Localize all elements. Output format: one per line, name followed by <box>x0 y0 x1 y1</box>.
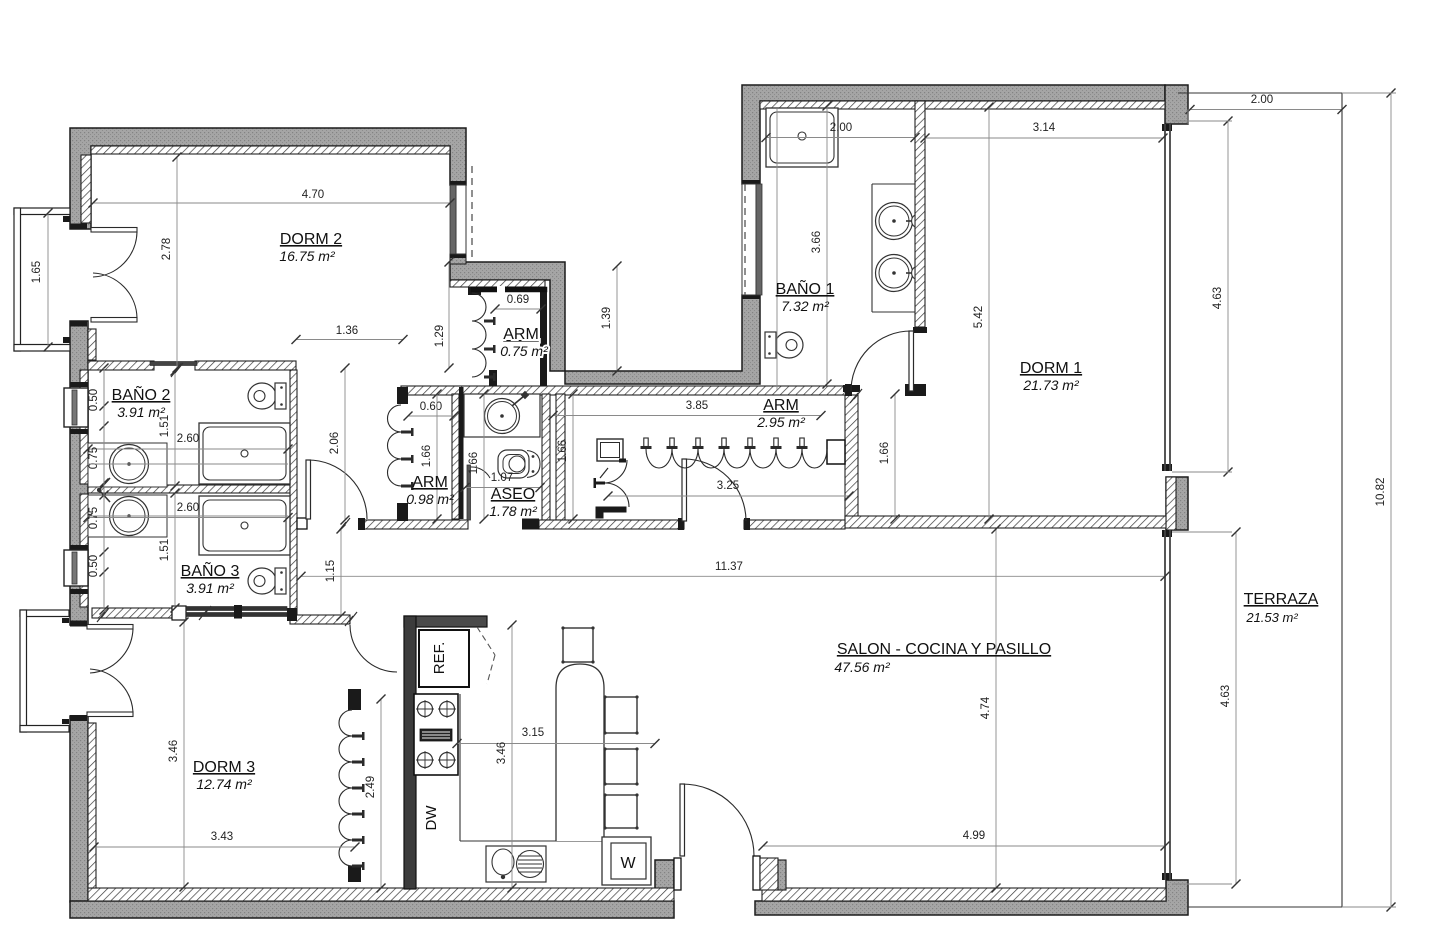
svg-text:1.07: 1.07 <box>491 472 513 484</box>
svg-text:DORM 2: DORM 2 <box>280 231 342 248</box>
svg-text:11.37: 11.37 <box>715 561 743 573</box>
svg-text:0.50: 0.50 <box>88 389 100 411</box>
svg-text:DW: DW <box>423 805 440 831</box>
svg-text:ARM: ARM <box>412 474 448 491</box>
svg-text:4.74: 4.74 <box>980 696 992 719</box>
svg-text:BAÑO 2: BAÑO 2 <box>112 384 171 404</box>
svg-text:DORM 3: DORM 3 <box>193 759 255 776</box>
svg-text:3.14: 3.14 <box>1033 122 1056 134</box>
svg-text:DORM 1: DORM 1 <box>1020 360 1082 377</box>
svg-text:BAÑO 3: BAÑO 3 <box>181 560 240 580</box>
svg-text:1.65: 1.65 <box>31 261 43 283</box>
svg-text:REF.: REF. <box>431 642 448 675</box>
svg-text:1.51: 1.51 <box>159 539 171 561</box>
svg-text:4.63: 4.63 <box>1212 287 1224 309</box>
svg-text:1.66: 1.66 <box>468 452 480 474</box>
svg-text:ARM: ARM <box>503 326 539 343</box>
svg-text:ASEO: ASEO <box>491 486 535 503</box>
svg-text:21.73 m²: 21.73 m² <box>1022 377 1080 393</box>
svg-text:47.56 m²: 47.56 m² <box>834 659 891 675</box>
svg-text:7.32 m²: 7.32 m² <box>781 298 830 314</box>
svg-text:0.75: 0.75 <box>88 447 100 469</box>
svg-text:1.66: 1.66 <box>557 440 569 462</box>
svg-text:21.53 m²: 21.53 m² <box>1245 610 1298 625</box>
svg-text:0.50: 0.50 <box>88 555 100 577</box>
svg-text:2.49: 2.49 <box>365 776 377 798</box>
svg-text:0.69: 0.69 <box>507 294 529 306</box>
svg-text:W: W <box>620 855 636 872</box>
svg-text:1.39: 1.39 <box>601 307 613 329</box>
svg-text:3.46: 3.46 <box>168 740 180 762</box>
svg-text:2.95 m²: 2.95 m² <box>756 414 806 430</box>
svg-text:1.15: 1.15 <box>325 560 337 582</box>
svg-text:3.85: 3.85 <box>686 400 708 412</box>
svg-text:3.25: 3.25 <box>717 480 739 492</box>
svg-text:TERRAZA: TERRAZA <box>1244 591 1319 608</box>
svg-text:1.29: 1.29 <box>434 325 446 347</box>
svg-text:3.46: 3.46 <box>496 742 508 764</box>
svg-text:2.00: 2.00 <box>830 122 852 134</box>
svg-text:10.82: 10.82 <box>1375 478 1387 507</box>
svg-text:4.99: 4.99 <box>963 830 985 842</box>
svg-text:3.66: 3.66 <box>811 231 823 253</box>
svg-text:16.75 m²: 16.75 m² <box>279 248 336 264</box>
svg-text:12.74 m²: 12.74 m² <box>196 776 253 792</box>
svg-text:3.15: 3.15 <box>522 727 544 739</box>
svg-text:0.75: 0.75 <box>88 507 100 529</box>
svg-text:5.42: 5.42 <box>973 306 985 328</box>
svg-text:BAÑO 1: BAÑO 1 <box>776 278 835 298</box>
svg-text:1.36: 1.36 <box>336 325 358 337</box>
svg-text:3.43: 3.43 <box>211 831 233 843</box>
svg-text:3.91 m²: 3.91 m² <box>117 404 166 420</box>
svg-text:1.66: 1.66 <box>879 442 891 464</box>
svg-text:SALON - COCINA Y PASILLO: SALON - COCINA Y PASILLO <box>837 641 1051 658</box>
svg-text:4.70: 4.70 <box>302 189 324 201</box>
svg-text:0.75 m²: 0.75 m² <box>500 343 549 359</box>
svg-text:4.63: 4.63 <box>1220 685 1232 707</box>
svg-text:3.91 m²: 3.91 m² <box>186 580 235 596</box>
svg-text:0.60: 0.60 <box>420 401 442 413</box>
svg-text:ARM: ARM <box>763 397 799 414</box>
svg-text:1.78 m²: 1.78 m² <box>489 503 538 519</box>
svg-text:2.78: 2.78 <box>161 238 173 260</box>
svg-text:2.60: 2.60 <box>177 433 199 445</box>
svg-text:2.60: 2.60 <box>177 502 199 514</box>
svg-text:2.00: 2.00 <box>1251 94 1273 106</box>
svg-text:1.66: 1.66 <box>421 445 433 467</box>
svg-text:0.98 m²: 0.98 m² <box>406 491 455 507</box>
svg-text:2.06: 2.06 <box>329 432 341 454</box>
